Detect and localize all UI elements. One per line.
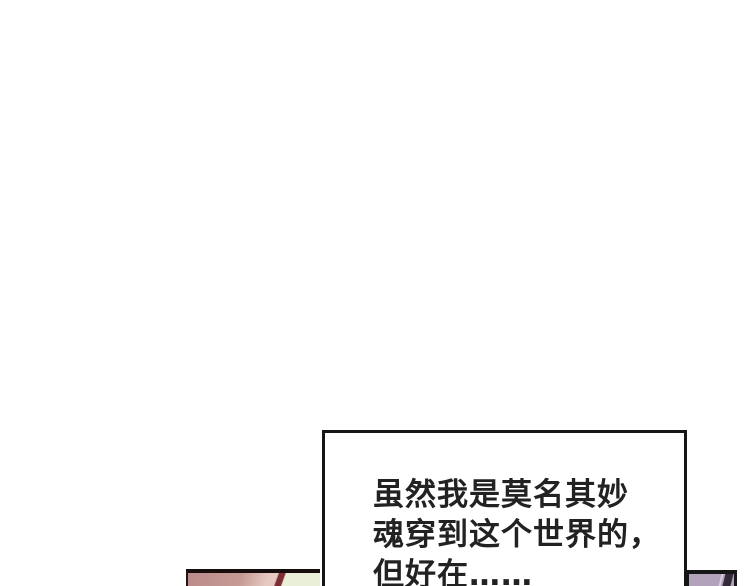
panel-fragment-bottom-right bbox=[687, 570, 737, 586]
dialog-line-1: 虽然我是莫名其妙 bbox=[373, 475, 661, 515]
panel-right-dark-stripe bbox=[722, 572, 734, 586]
panel-fragment-bottom-left bbox=[186, 569, 320, 586]
speech-bubble: 虽然我是莫名其妙 魂穿到这个世界的， 但好在…… bbox=[322, 430, 687, 586]
dialog-line-3: 但好在…… bbox=[373, 555, 661, 586]
dialog-text: 虽然我是莫名其妙 魂穿到这个世界的， 但好在…… bbox=[373, 475, 661, 586]
comic-page: 虽然我是莫名其妙 魂穿到这个世界的， 但好在…… bbox=[0, 0, 750, 586]
dialog-line-2: 魂穿到这个世界的， bbox=[373, 515, 661, 555]
